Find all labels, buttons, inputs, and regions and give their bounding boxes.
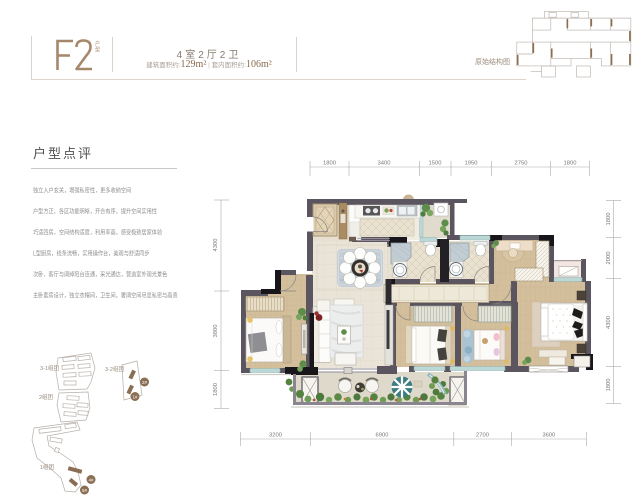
svg-text:1500: 1500 [429, 161, 442, 167]
svg-text:1950: 1950 [465, 161, 478, 167]
svg-text:2000: 2000 [606, 252, 612, 265]
svg-text:3600: 3600 [542, 433, 555, 439]
svg-text:2750: 2750 [515, 161, 528, 167]
svg-text:3800: 3800 [213, 325, 219, 338]
svg-text:1800: 1800 [606, 213, 612, 226]
svg-text:2700: 2700 [476, 433, 489, 439]
svg-text:3200: 3200 [269, 433, 282, 439]
svg-text:3400: 3400 [378, 161, 391, 167]
svg-text:1800: 1800 [564, 161, 577, 167]
svg-text:4300: 4300 [213, 239, 219, 252]
svg-text:1800: 1800 [323, 161, 336, 167]
svg-text:1800: 1800 [606, 379, 612, 392]
svg-text:6900: 6900 [376, 433, 389, 439]
svg-text:4300: 4300 [606, 316, 612, 329]
svg-text:1800: 1800 [213, 383, 219, 396]
